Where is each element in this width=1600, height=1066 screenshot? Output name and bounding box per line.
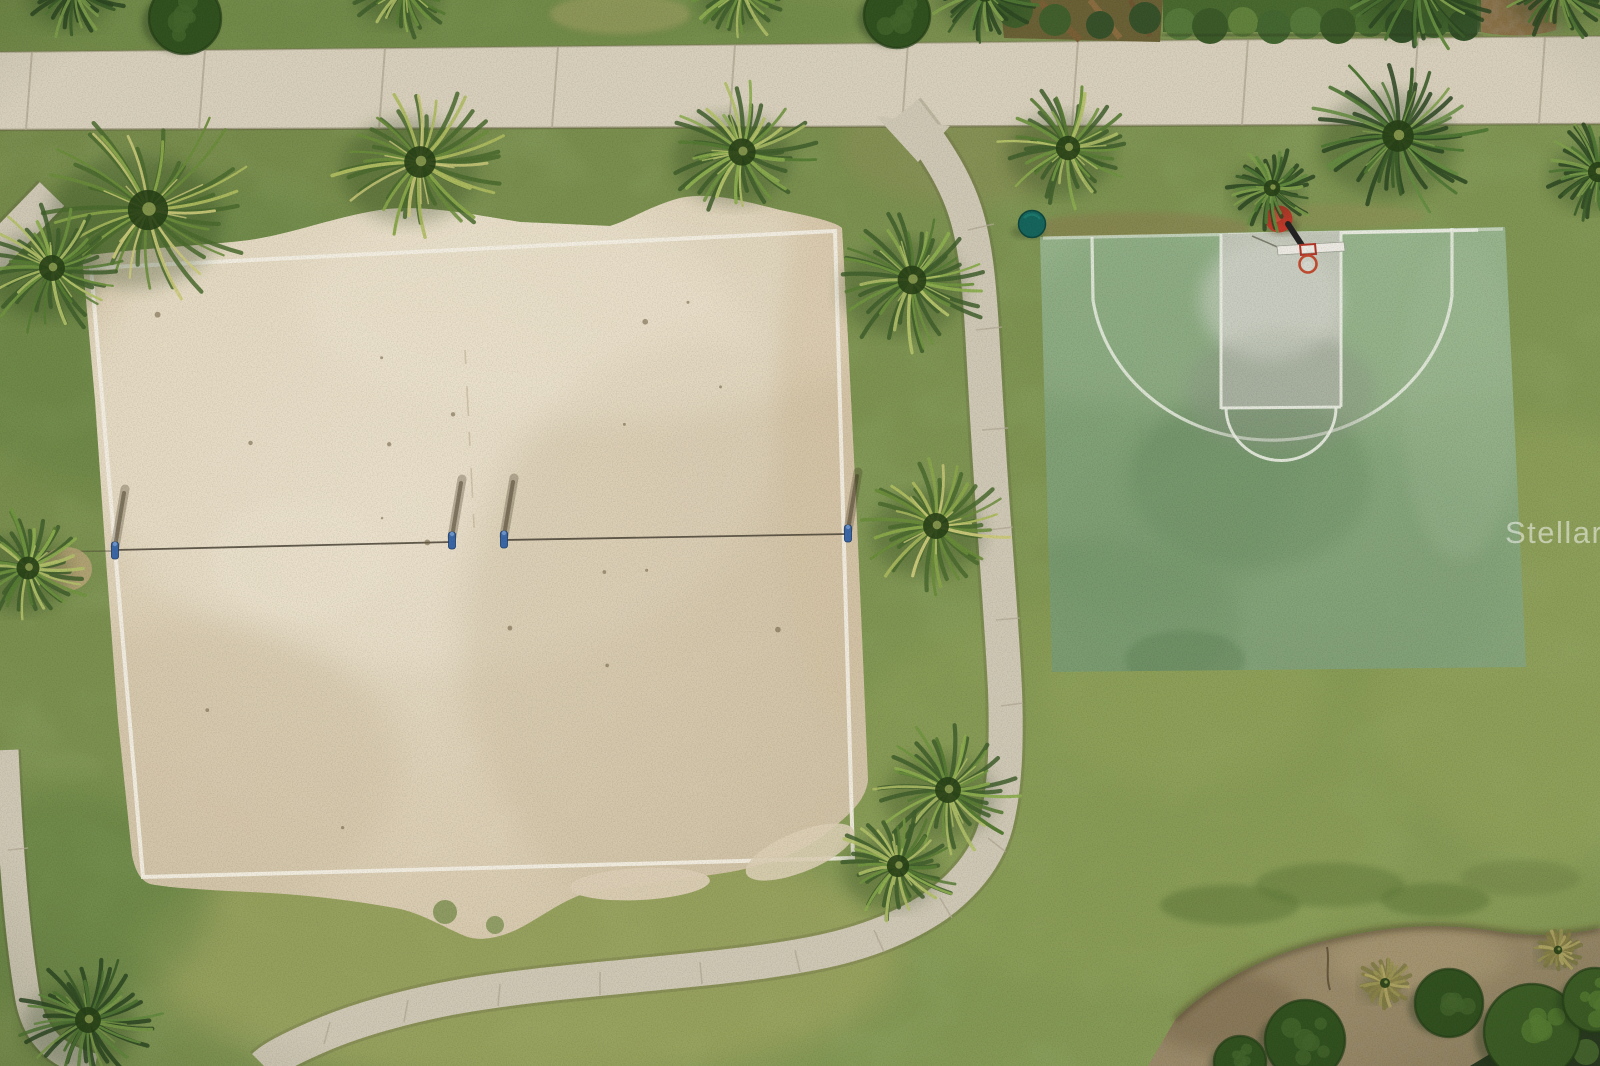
aerial-photo-canvas: StellarMLS (0, 0, 1600, 1066)
vignette (0, 0, 1600, 1066)
aerial-photo: StellarMLS (0, 0, 1600, 1066)
